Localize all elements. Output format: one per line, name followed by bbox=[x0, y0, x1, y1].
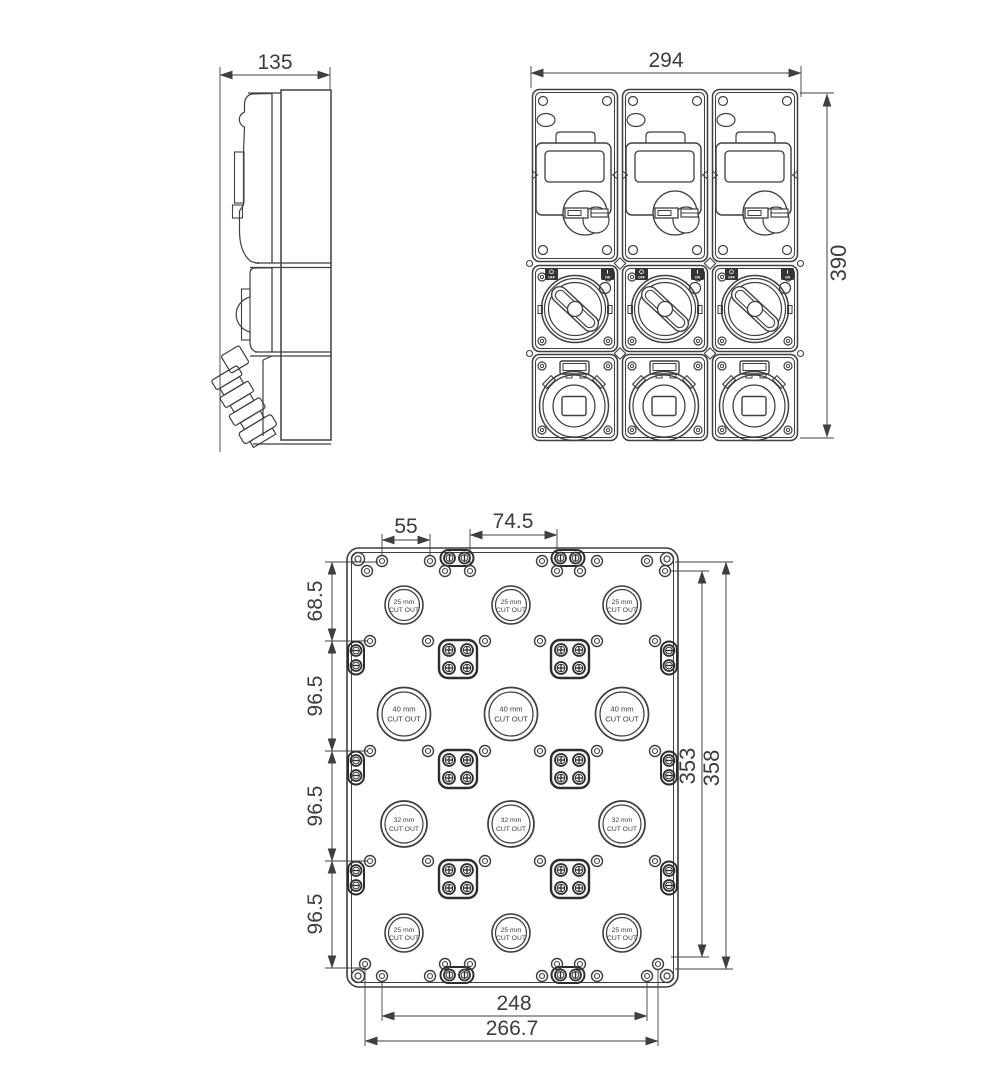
cutout-row-32mm bbox=[381, 801, 645, 847]
dim-top-55-value: 55 bbox=[394, 515, 417, 538]
plate-view: 55 74.5 68.5 96.5 96.5 96.5 bbox=[304, 510, 733, 1046]
cutout-row-40mm bbox=[378, 688, 649, 741]
dim-bottom-266-7-value: 266.7 bbox=[486, 1017, 539, 1040]
breaker-module-1 bbox=[533, 90, 618, 262]
switch-module-1 bbox=[533, 266, 618, 352]
dim-top-74-5-value: 74.5 bbox=[493, 510, 534, 533]
socket-module-1 bbox=[533, 355, 618, 441]
plate-top-edge-holes bbox=[362, 550, 671, 577]
socket-module-2 bbox=[623, 355, 708, 441]
switch-module-3 bbox=[713, 266, 798, 352]
front-width-value: 294 bbox=[648, 49, 683, 72]
technical-drawing-page: 25 mm CUT OUT 40 mm CUT OUT 32 mm CUT OU… bbox=[0, 0, 1001, 1081]
plate-band-row-1 bbox=[348, 636, 677, 679]
dim-top-74-5: 74.5 bbox=[470, 510, 557, 566]
dim-left-68-5: 68.5 bbox=[304, 581, 327, 622]
front-height-value: 390 bbox=[826, 245, 851, 282]
dim-right-358-value: 358 bbox=[699, 750, 724, 787]
switch-module-2 bbox=[623, 266, 708, 352]
plate-bottom-edge-holes bbox=[360, 959, 664, 984]
cutout-row-25mm-bottom bbox=[385, 914, 641, 952]
dim-right-353-value: 353 bbox=[675, 748, 700, 785]
enclosure-side-profile bbox=[199, 90, 331, 451]
breaker-module-3 bbox=[713, 90, 798, 262]
enclosure-dimension-drawing: 25 mm CUT OUT 40 mm CUT OUT 32 mm CUT OU… bbox=[0, 0, 1001, 1081]
plate-band-row-3 bbox=[348, 856, 677, 899]
breaker-module-2 bbox=[623, 90, 708, 262]
dim-left-96-5-a: 96.5 bbox=[304, 676, 327, 717]
plate-band-row-2 bbox=[348, 746, 677, 789]
front-view: 294 390 bbox=[527, 49, 852, 441]
socket-module-3 bbox=[713, 355, 798, 441]
cutout-row-25mm-top bbox=[385, 586, 641, 624]
dim-left-chain: 68.5 96.5 96.5 96.5 bbox=[304, 562, 378, 968]
side-view: 135 bbox=[199, 51, 331, 452]
dim-bottom-248-value: 248 bbox=[496, 992, 531, 1015]
dim-front-height: 390 bbox=[800, 93, 851, 438]
dim-side-width: 135 bbox=[220, 51, 330, 452]
dim-top-55: 55 bbox=[382, 515, 430, 556]
dim-left-96-5-c: 96.5 bbox=[304, 894, 327, 935]
angled-socket-profile bbox=[199, 345, 287, 450]
dim-left-96-5-b: 96.5 bbox=[304, 786, 327, 827]
side-width-value: 135 bbox=[257, 51, 292, 74]
